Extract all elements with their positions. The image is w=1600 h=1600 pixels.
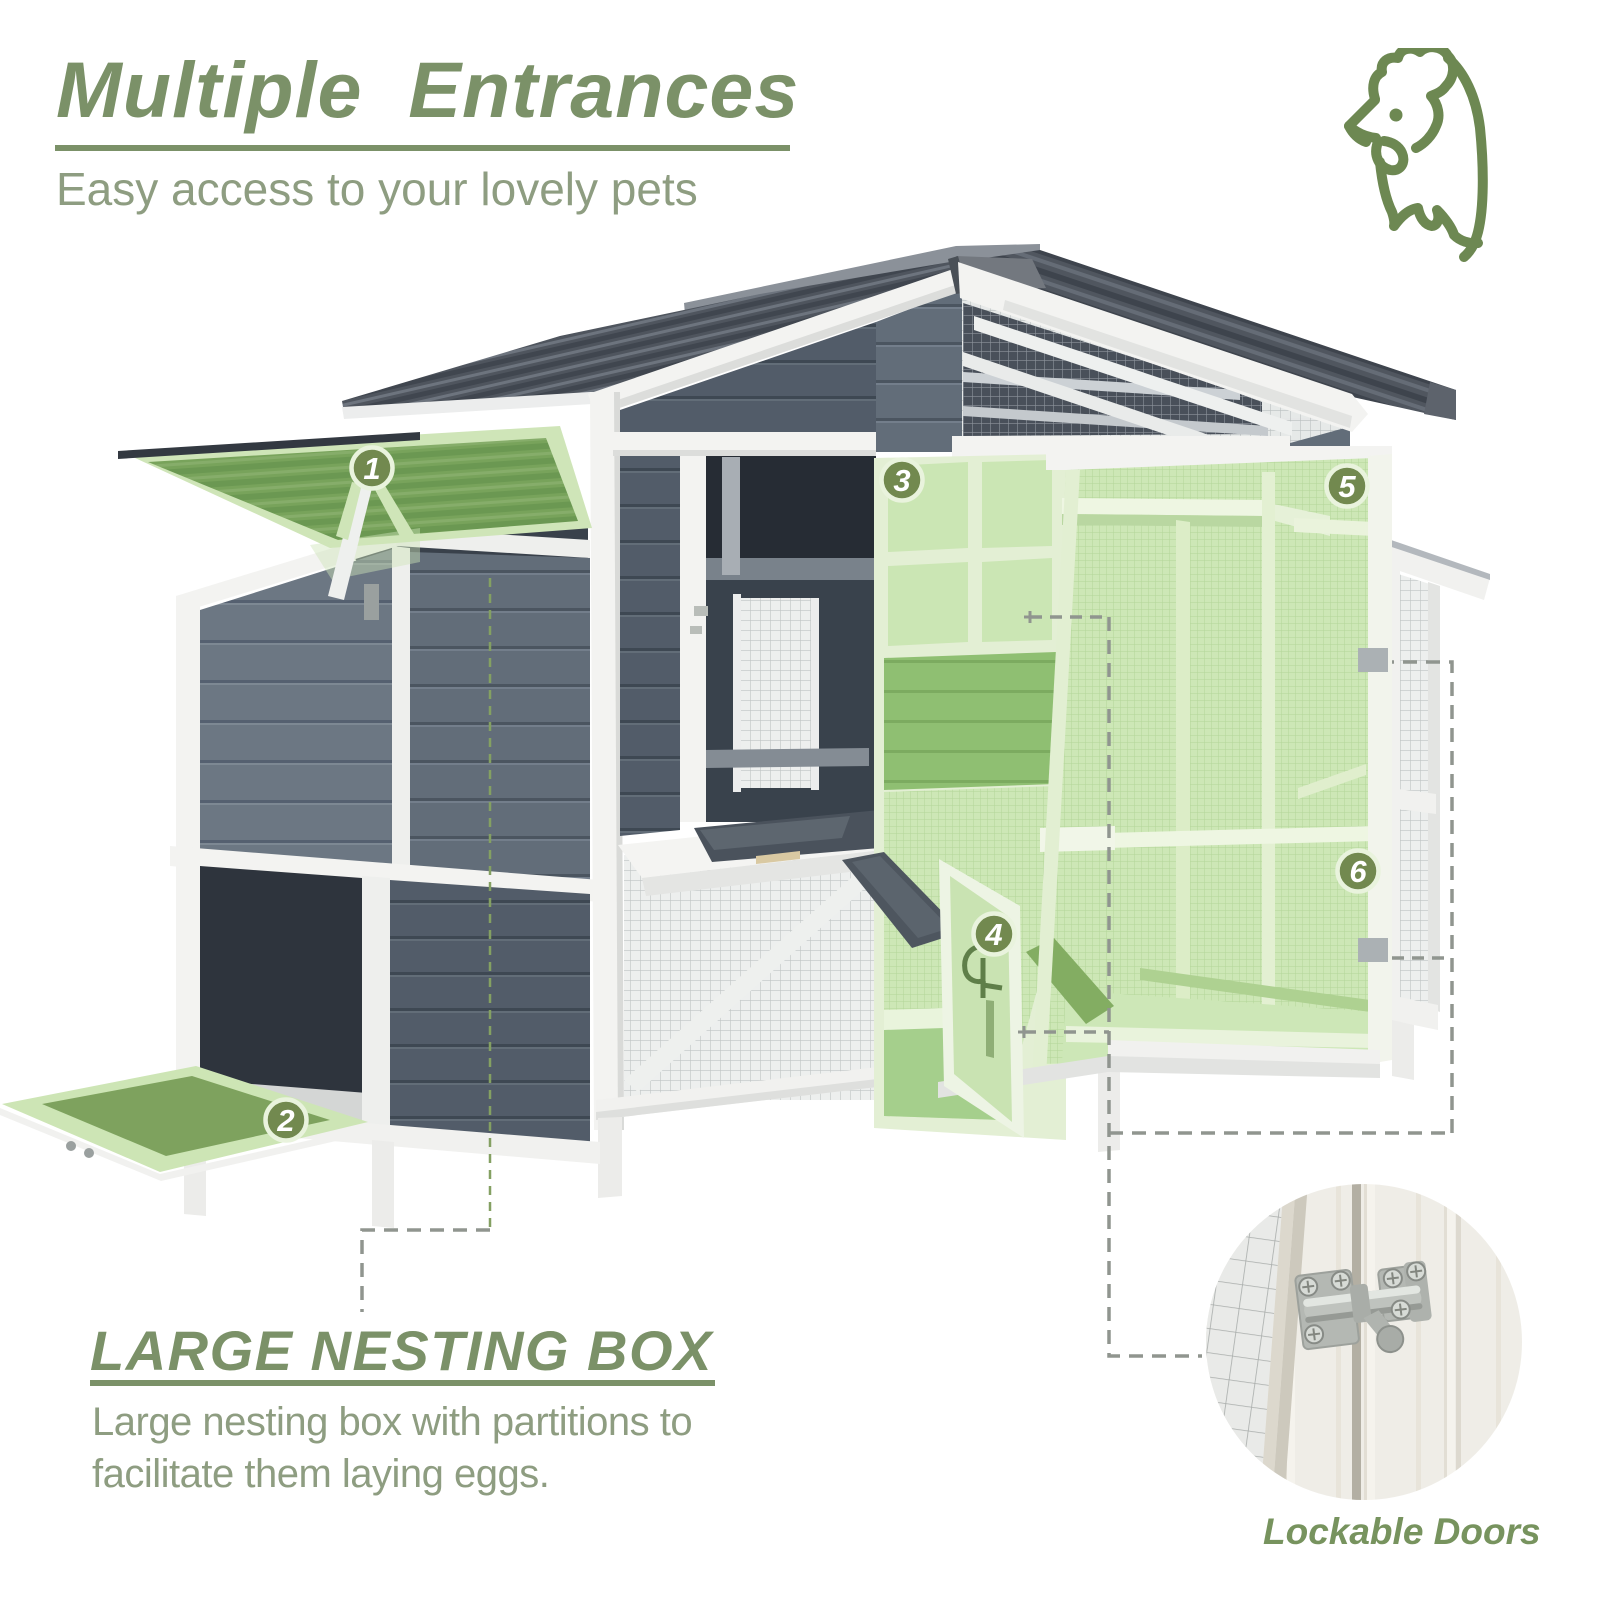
svg-text:1: 1: [363, 451, 380, 486]
svg-text:5: 5: [1338, 469, 1356, 504]
svg-text:2: 2: [276, 1103, 294, 1138]
svg-text:4: 4: [984, 917, 1002, 952]
svg-text:3: 3: [893, 463, 910, 498]
svg-text:6: 6: [1349, 854, 1367, 889]
